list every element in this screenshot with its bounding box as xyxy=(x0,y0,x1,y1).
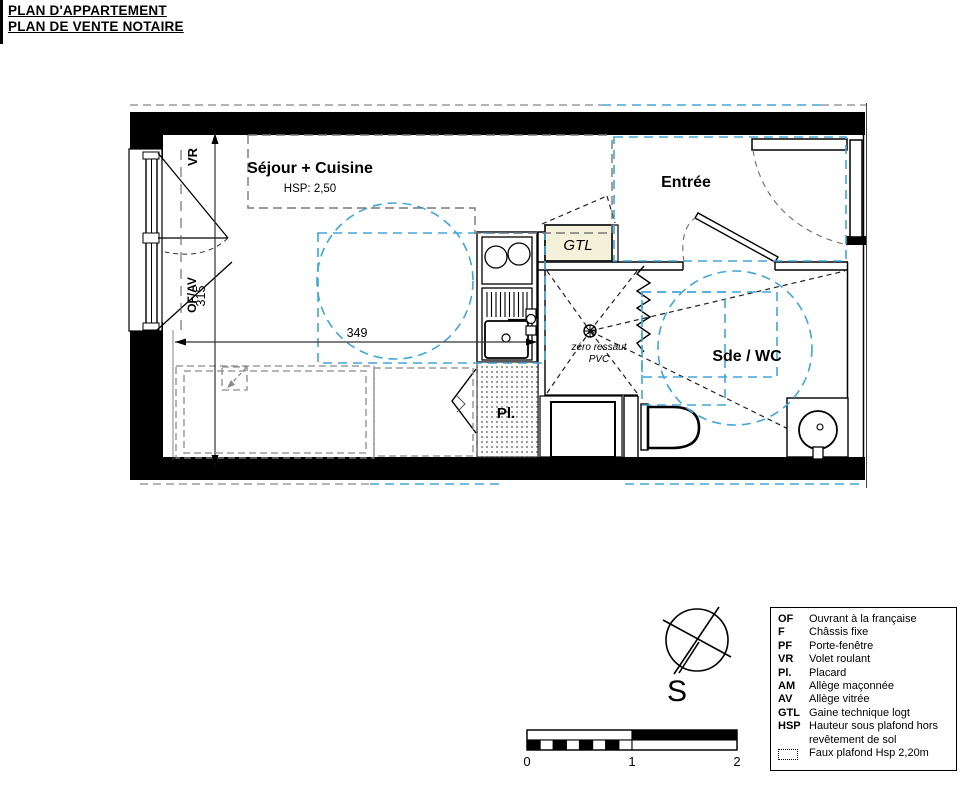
legend-label: Faux plafond Hsp 2,20m xyxy=(809,747,950,760)
compass-icon: S xyxy=(663,607,731,708)
bed-outline-outer xyxy=(176,366,374,458)
furniture-outlines xyxy=(176,366,473,458)
entree-label: Entrée xyxy=(661,174,711,191)
legend-row-am: AMAllège maçonnée xyxy=(778,680,950,693)
legend-label: Placard xyxy=(809,667,950,680)
window-ofav-label: OF/AV xyxy=(185,277,199,313)
legend-label: Porte-fenêtre xyxy=(809,640,950,653)
placard-label: Pl. xyxy=(497,405,515,422)
legend-abbr: HSP xyxy=(778,720,809,733)
legend-abbr: Pl. xyxy=(778,667,809,680)
entrance-door-leaf-closed xyxy=(850,140,862,237)
legend-abbr: GTL xyxy=(778,707,809,720)
legend-label: Allège vitrée xyxy=(809,693,950,706)
shower-screen-zigzag xyxy=(637,266,650,352)
wall-top xyxy=(130,112,865,135)
gtl-duct: GTL xyxy=(542,196,615,261)
entrance-door-swing-arc xyxy=(753,150,848,245)
legend-row-vr: VRVolet roulant xyxy=(778,653,950,666)
clear-zone-entree xyxy=(614,137,846,261)
legend-label: Hauteur sous plafond hors xyxy=(809,720,950,733)
legend-row-hsp2: revêtement de sol xyxy=(778,734,950,747)
legend-abbr: VR xyxy=(778,653,809,666)
accessibility-zones xyxy=(317,137,846,425)
scale-tick-0: 0 xyxy=(523,754,530,769)
legend-label: Gaine technique logt xyxy=(809,707,950,720)
wall-left-bottom xyxy=(130,322,163,480)
bathroom-door xyxy=(683,213,778,262)
legend-abbr: OF xyxy=(778,613,809,626)
appliance-niche xyxy=(540,396,622,457)
legend-abbr: AV xyxy=(778,693,809,706)
sejour-hsp-label: HSP: 2,50 xyxy=(284,183,336,195)
dim-width-label: 349 xyxy=(347,326,368,340)
burner-left xyxy=(485,246,507,268)
gtl-door-swing xyxy=(542,196,615,224)
sink-drain xyxy=(502,334,510,342)
furniture-outline-side xyxy=(374,368,473,456)
turning-circle-sejour xyxy=(317,203,473,359)
legend-label: Châssis fixe xyxy=(809,626,950,639)
window-mullion xyxy=(143,233,159,243)
bed-outline-inner xyxy=(184,371,366,453)
legend-row-av: AVAllège vitrée xyxy=(778,693,950,706)
legend-abbr xyxy=(778,747,809,764)
shower-drain xyxy=(584,325,596,337)
scale-bar: 0 1 2 xyxy=(523,730,740,769)
wall-bottom xyxy=(130,457,865,480)
legend-row-of: OFOuvrant à la française xyxy=(778,613,950,626)
legend-row-gtl: GTLGaine technique logt xyxy=(778,707,950,720)
legend-row-f: FChâssis fixe xyxy=(778,626,950,639)
legend-label: Ouvrant à la française xyxy=(809,613,950,626)
legend-row-hsp: HSPHauteur sous plafond hors xyxy=(778,720,950,733)
bathroom-door-leaf xyxy=(695,213,778,262)
burner-right xyxy=(508,243,530,265)
washbasin-faucet xyxy=(813,447,823,459)
washbasin-bowl xyxy=(799,411,837,449)
window-swing-arc xyxy=(165,238,228,254)
sejour-label: Séjour + Cuisine xyxy=(247,160,373,177)
legend-label: Volet roulant xyxy=(809,653,950,666)
gtl-label: GTL xyxy=(563,237,592,254)
shower-note-line1: zéro ressaut xyxy=(570,342,627,353)
washbasin xyxy=(787,398,848,459)
compass-south-label: S xyxy=(667,675,687,708)
floor-plan-page: PLAN D'APPARTEMENT PLAN DE VENTE NOTAIRE xyxy=(0,0,966,787)
legend-abbr: AM xyxy=(778,680,809,693)
bathroom-door-swing-arc xyxy=(683,218,695,262)
legend-label: revêtement de sol xyxy=(809,734,950,747)
entrance-door-leaf-open xyxy=(752,139,847,150)
window-vr-label: VR xyxy=(185,147,200,166)
scale-tick-2: 2 xyxy=(733,754,740,769)
legend-box: OFOuvrant à la française FChâssis fixe P… xyxy=(770,607,957,771)
sdewc-label: Sde / WC xyxy=(712,348,782,365)
legend-abbr: PF xyxy=(778,640,809,653)
legend-row-pl: Pl.Placard xyxy=(778,667,950,680)
scale-tick-1: 1 xyxy=(628,754,635,769)
window-left xyxy=(129,149,232,332)
legend-abbr: F xyxy=(778,626,809,639)
legend-row-faux-plafond: Faux plafond Hsp 2,20m xyxy=(778,747,950,764)
legend-row-pf: PFPorte-fenêtre xyxy=(778,640,950,653)
placard: Pl. xyxy=(452,362,538,457)
washbasin-drain xyxy=(817,424,823,430)
shower-note-line2: PVC xyxy=(589,354,610,365)
legend-label: Allège maçonnée xyxy=(809,680,950,693)
faux-plafond-hatch-icon xyxy=(778,749,798,760)
